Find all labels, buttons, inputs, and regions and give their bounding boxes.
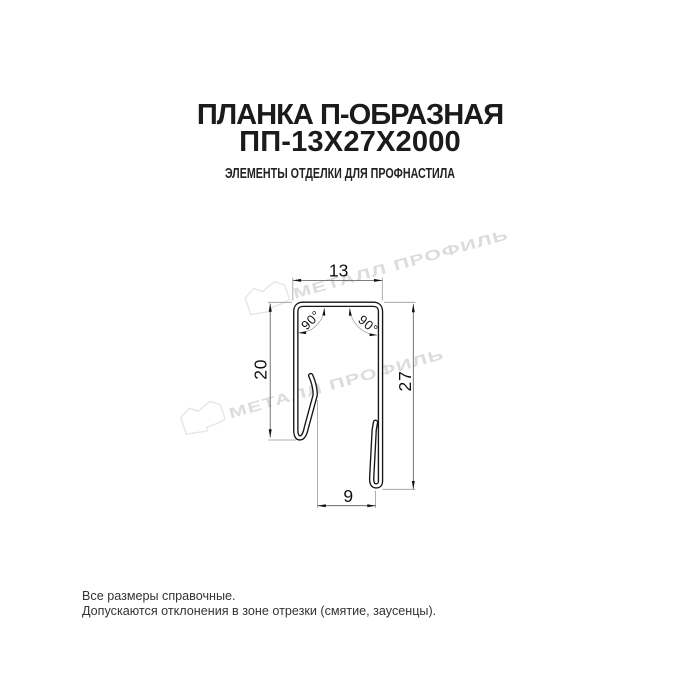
svg-text:13: 13	[329, 261, 348, 281]
svg-text:20: 20	[251, 359, 271, 380]
svg-text:9: 9	[343, 486, 353, 506]
svg-text:90°: 90°	[355, 312, 381, 337]
svg-text:90°: 90°	[298, 307, 324, 333]
svg-text:27: 27	[395, 370, 415, 391]
